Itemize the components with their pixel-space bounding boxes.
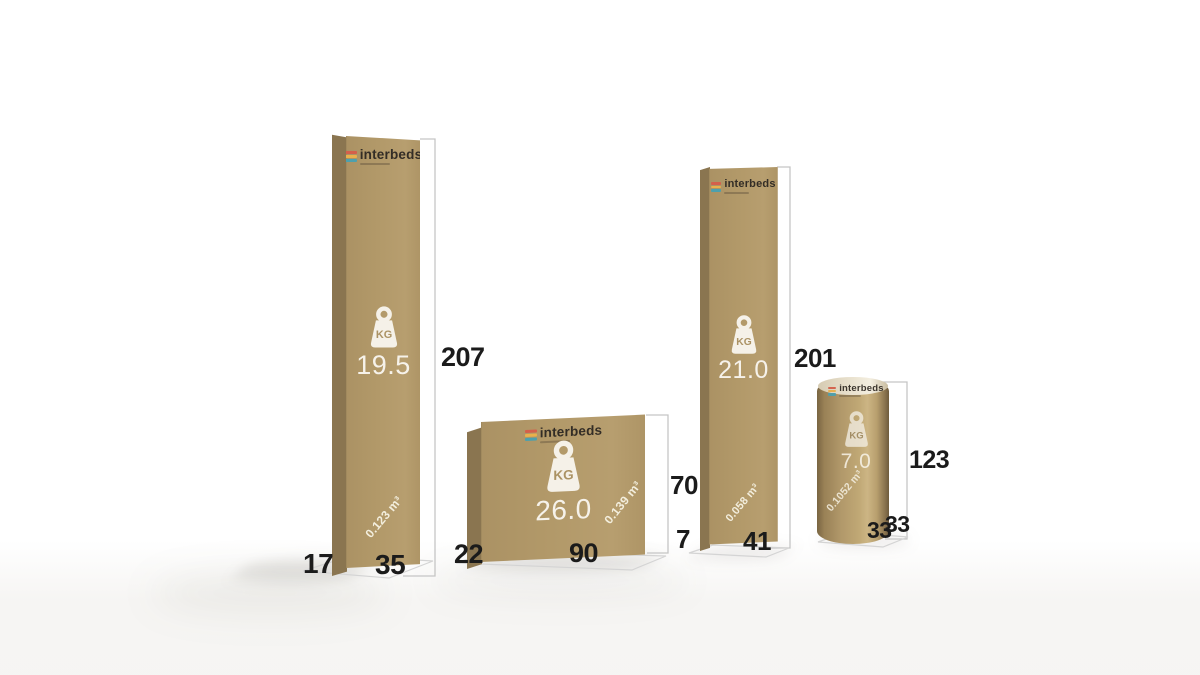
height-dimension-box-3: 201 xyxy=(794,345,836,371)
interbeds-logo-text: interbeds xyxy=(839,384,884,397)
weight-value: 19.5 xyxy=(356,352,411,379)
interbeds-logo: interbeds xyxy=(347,148,420,165)
kg-label: KG xyxy=(736,337,751,348)
package-tall-box-3: interbeds KG 21.0 0.058 m³ xyxy=(700,163,805,565)
kg-weight-icon: KG xyxy=(365,306,403,350)
width-dimension-box-1: 35 xyxy=(375,551,405,579)
depth-dimension-box-3: 7 xyxy=(676,526,690,552)
height-dimension-tube-4: 123 xyxy=(909,448,949,473)
height-dimension-box-2: 70 xyxy=(670,472,698,498)
width-dimension-box-2: 90 xyxy=(569,540,598,567)
weight-value: 21.0 xyxy=(718,358,769,383)
kg-weight-icon: KG xyxy=(840,411,873,449)
kg-label: KG xyxy=(553,467,573,483)
box-2-front-face: interbeds KG 26.0 0.139 m³ xyxy=(481,415,645,562)
depth-dimension-tube-4: 33 xyxy=(885,513,910,536)
box-1-front-face: interbeds KG 19.5 0.123 m³ xyxy=(346,136,420,568)
packaging-dimensions-scene: interbeds KG 19.5 0.123 m³ interbeds xyxy=(0,0,1200,675)
package-tall-box-1: interbeds KG 19.5 0.123 m³ xyxy=(332,131,444,583)
kg-weight-icon: KG xyxy=(726,315,762,356)
volume-label: 0.058 m³ xyxy=(724,482,763,525)
interbeds-logo: interbeds xyxy=(817,384,895,397)
box-1-side-face xyxy=(332,133,347,576)
depth-dimension-box-1: 17 xyxy=(303,550,333,578)
weight-block: KG 21.0 xyxy=(710,315,777,383)
height-dimension-box-1: 207 xyxy=(441,344,485,371)
weight-value: 26.0 xyxy=(535,495,592,526)
interbeds-logo-icon xyxy=(711,182,721,192)
box-3-side-face xyxy=(700,167,710,551)
interbeds-logo: interbeds xyxy=(710,179,777,194)
interbeds-logo-icon xyxy=(345,151,357,162)
weight-block: KG 7.0 xyxy=(817,411,895,472)
kg-weight-icon: KG xyxy=(540,439,587,495)
kg-label: KG xyxy=(375,329,391,341)
kg-label: KG xyxy=(849,431,863,442)
volume-label: 0.123 m³ xyxy=(363,493,406,540)
width-dimension-box-3: 41 xyxy=(743,528,771,554)
depth-dimension-box-2: 22 xyxy=(454,541,483,568)
interbeds-logo-icon xyxy=(525,429,537,441)
interbeds-logo-text: interbeds xyxy=(360,148,423,165)
interbeds-logo-icon xyxy=(828,387,836,396)
box-3-front-face: interbeds KG 21.0 0.058 m³ xyxy=(709,167,778,546)
weight-block: KG 19.5 xyxy=(347,306,420,379)
interbeds-logo-text: interbeds xyxy=(724,179,775,194)
